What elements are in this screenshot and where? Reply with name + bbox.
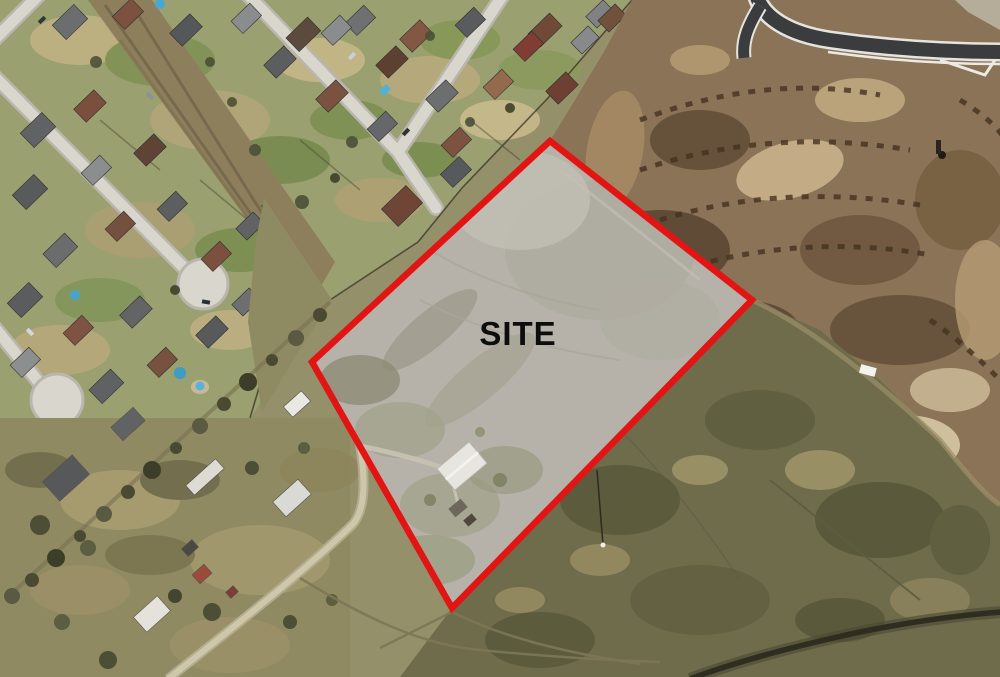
aerial-photo: SITE [0, 0, 1000, 677]
aerial-site-map: SITE [0, 0, 1000, 677]
site-label: SITE [479, 315, 556, 352]
